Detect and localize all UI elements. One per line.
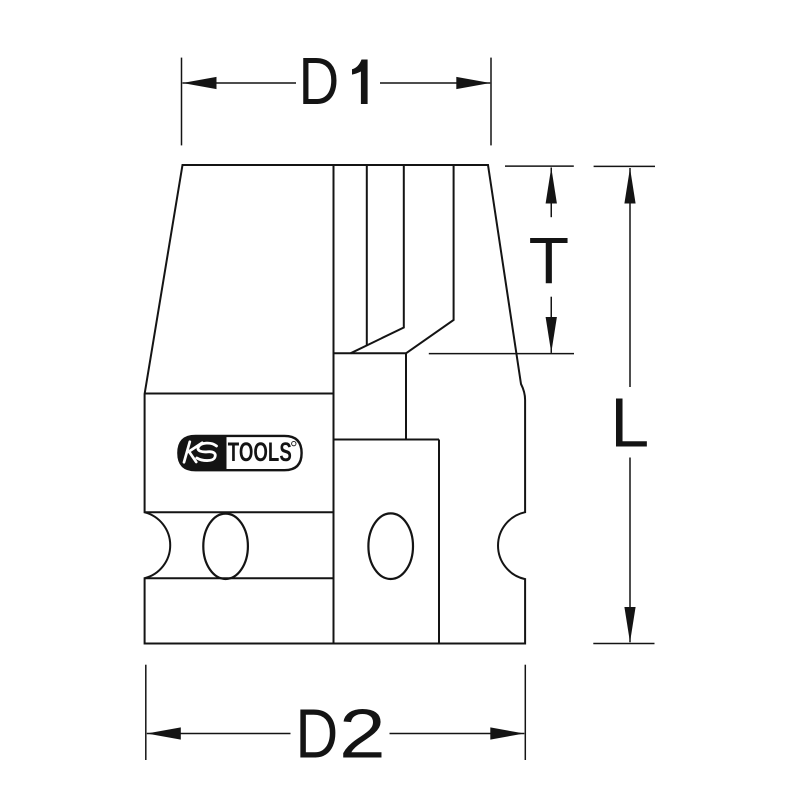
svg-text:2: 2: [339, 695, 386, 773]
svg-text:TOOLS: TOOLS: [228, 437, 292, 467]
svg-text:T: T: [529, 225, 569, 299]
svg-text:D: D: [299, 45, 340, 120]
svg-text:D: D: [296, 694, 339, 773]
svg-text:L: L: [610, 383, 649, 461]
